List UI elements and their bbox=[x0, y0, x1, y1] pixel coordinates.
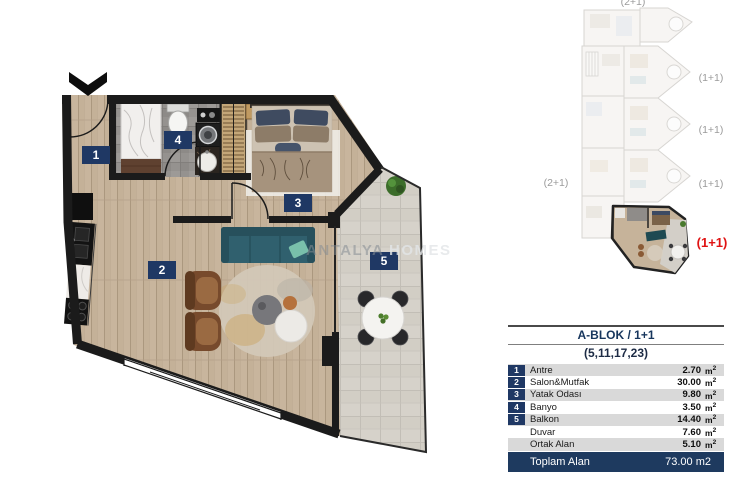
wall-corner-block bbox=[328, 212, 340, 228]
room-number-cell: 4 bbox=[508, 402, 525, 413]
room-area: 9.80 bbox=[665, 389, 701, 400]
room-number-cell: 5 bbox=[508, 414, 525, 425]
main-floor-plan: 1 2 3 4 5 ANTALYA HOMES bbox=[62, 72, 452, 452]
room-number-cell: 3 bbox=[508, 389, 525, 400]
keyplan-unit-label: (1+1) bbox=[699, 124, 724, 136]
keyplan-label-left: (2+1) bbox=[544, 177, 569, 189]
svg-text:ANTALYA: ANTALYA bbox=[306, 242, 384, 259]
svg-text:HOMES: HOMES bbox=[389, 242, 452, 259]
room-area-unit: m2 bbox=[701, 402, 724, 413]
table-row: 3 Yatak Odası 9.80 m2 bbox=[508, 389, 724, 401]
table-row: 4 Banyo 3.50 m2 bbox=[508, 401, 724, 413]
room-area-unit: m2 bbox=[701, 390, 724, 401]
room-name: Yatak Odası bbox=[530, 389, 665, 400]
bathroom-sink bbox=[195, 147, 220, 175]
table-subtitle: (5,11,17,23) bbox=[508, 345, 724, 362]
room-area-unit: m2 bbox=[701, 427, 724, 438]
table-row: Duvar 7.60 m2 bbox=[508, 426, 724, 438]
room-label-1: 1 bbox=[82, 146, 110, 164]
room-label-2: 2 bbox=[148, 261, 176, 279]
keyplan-highlight-label: (1+1) bbox=[697, 235, 728, 250]
room-number-cell-empty bbox=[508, 439, 525, 450]
armchair bbox=[185, 312, 221, 351]
table-title: A-BLOK / 1+1 bbox=[508, 327, 724, 344]
total-area-value: 73.00 m2 bbox=[665, 456, 724, 468]
toilet bbox=[167, 104, 189, 135]
room-area: 14.40 bbox=[665, 414, 701, 425]
room-name: Balkon bbox=[530, 414, 665, 425]
sofa bbox=[221, 227, 315, 263]
sliding-door-handle bbox=[322, 336, 334, 366]
room-area-unit: m2 bbox=[701, 377, 724, 388]
keyplan-unit-label: (1+1) bbox=[699, 72, 724, 84]
room-number-cell: 2 bbox=[508, 377, 525, 388]
fridge bbox=[69, 193, 93, 220]
svg-text:1: 1 bbox=[93, 148, 100, 162]
room-name: Ortak Alan bbox=[530, 439, 665, 450]
dining-set bbox=[358, 291, 408, 345]
table-row: Ortak Alan 5.10 m2 bbox=[508, 438, 724, 450]
watermark: ANTALYA HOMES bbox=[306, 242, 452, 259]
key-plan: (2+1) (2+1) (1+1) (1+1) (1+1) (1+1) bbox=[544, 0, 728, 273]
entrance-arrow-icon bbox=[69, 72, 107, 96]
room-area: 2.70 bbox=[665, 365, 701, 376]
room-area: 7.60 bbox=[665, 427, 701, 438]
svg-text:4: 4 bbox=[175, 133, 182, 147]
room-number-cell: 1 bbox=[508, 365, 525, 376]
key-plan-faded-building bbox=[582, 8, 692, 238]
total-area-label: Toplam Alan bbox=[508, 456, 665, 468]
table-row: 5 Balkon 14.40 m2 bbox=[508, 414, 724, 426]
room-area: 5.10 bbox=[665, 439, 701, 450]
bed bbox=[250, 100, 334, 192]
room-name: Salon&Mutfak bbox=[530, 377, 665, 388]
table-row: 2 Salon&Mutfak 30.00 m2 bbox=[508, 376, 724, 388]
keyplan-unit-label: (1+1) bbox=[699, 178, 724, 190]
armchair bbox=[185, 271, 221, 310]
room-number-cell-empty bbox=[508, 427, 525, 438]
shower-cabin bbox=[121, 103, 161, 159]
room-label-4: 4 bbox=[164, 131, 192, 149]
room-area-unit: m2 bbox=[701, 414, 724, 425]
room-label-3: 3 bbox=[284, 194, 312, 212]
bench bbox=[121, 159, 161, 173]
room-name: Antre bbox=[530, 365, 665, 376]
room-name: Banyo bbox=[530, 402, 665, 413]
room-name: Duvar bbox=[530, 427, 665, 438]
svg-text:2: 2 bbox=[159, 263, 166, 277]
bathroom-shelf bbox=[197, 108, 220, 122]
room-area-unit: m2 bbox=[701, 365, 724, 376]
table-footer: Toplam Alan 73.00 m2 bbox=[508, 452, 724, 472]
wardrobe bbox=[221, 102, 246, 176]
floor-plan-page: 1 2 3 4 5 ANTALYA HOMES bbox=[0, 0, 750, 500]
room-area: 30.00 bbox=[665, 377, 701, 388]
room-area: 3.50 bbox=[665, 402, 701, 413]
key-plan-highlighted-unit bbox=[612, 206, 688, 273]
area-table: A-BLOK / 1+1 (5,11,17,23) 1 Antre 2.70 m… bbox=[508, 325, 724, 472]
room-area-unit: m2 bbox=[701, 439, 724, 450]
svg-text:3: 3 bbox=[295, 196, 302, 210]
table-row: 1 Antre 2.70 m2 bbox=[508, 364, 724, 376]
keyplan-label-top: (2+1) bbox=[621, 0, 646, 8]
table-rows: 1 Antre 2.70 m2 2 Salon&Mutfak 30.00 m2 … bbox=[508, 364, 724, 451]
